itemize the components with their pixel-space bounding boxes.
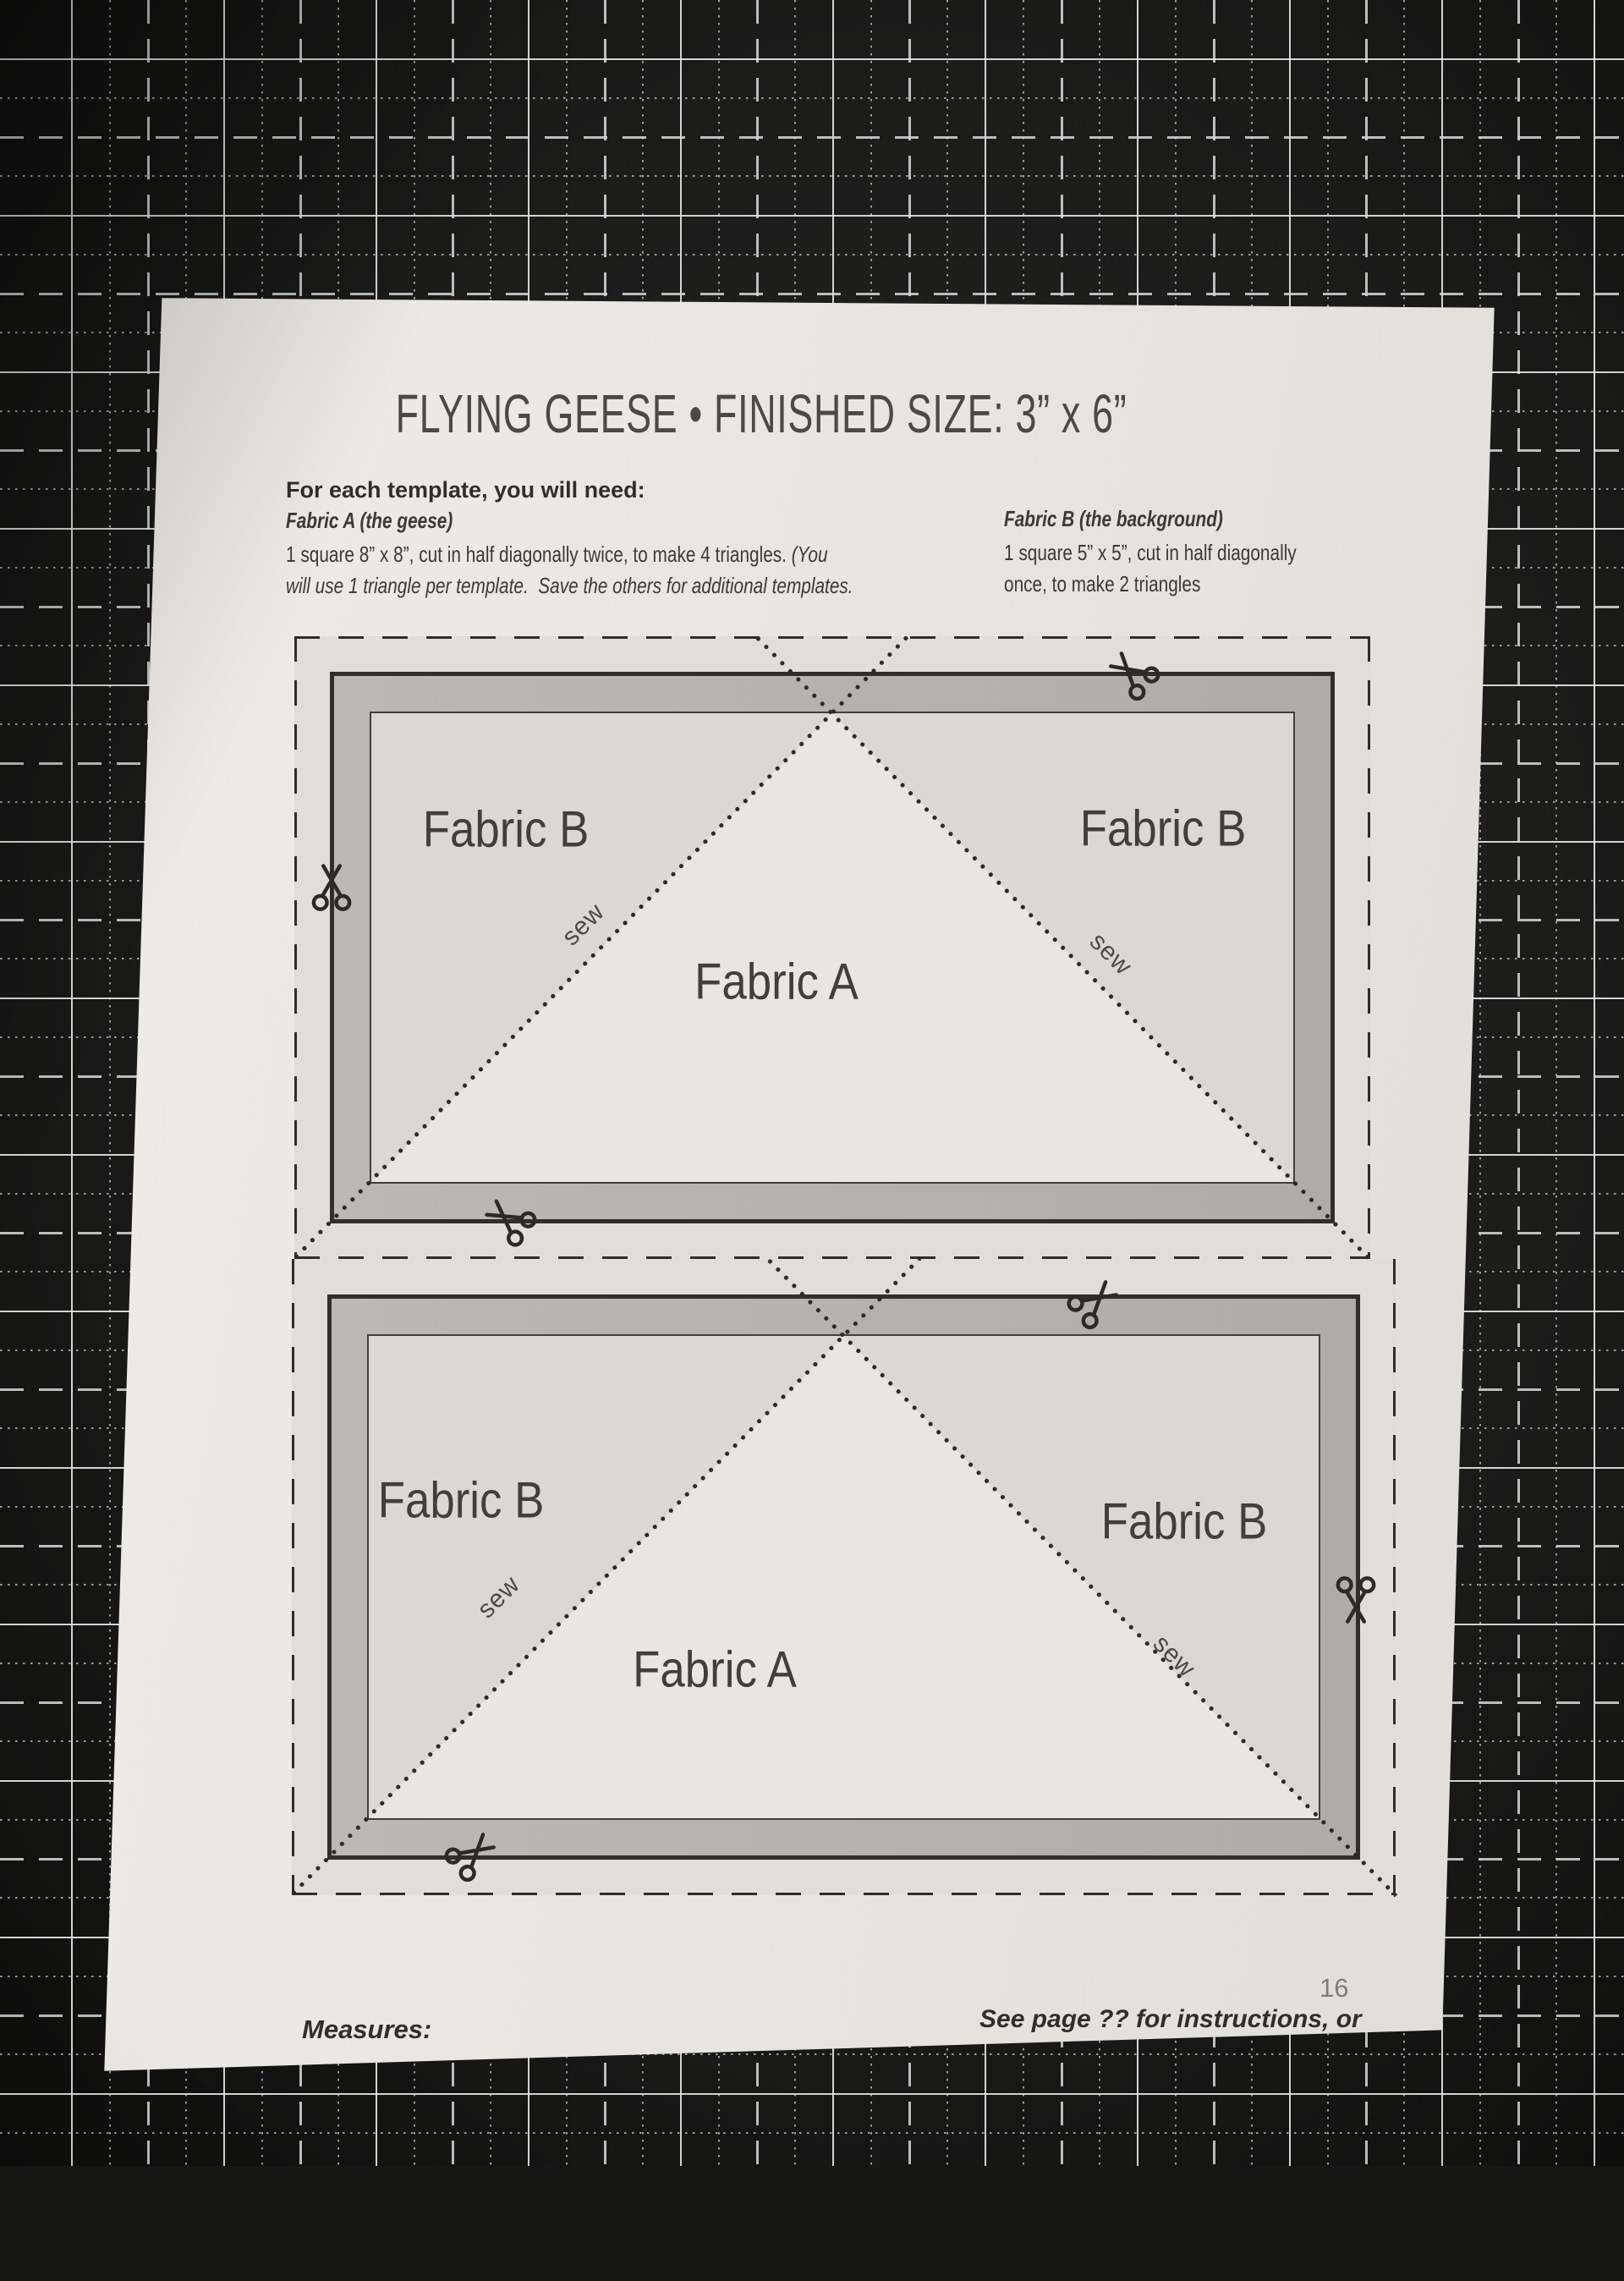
cut-line-left xyxy=(294,636,297,1259)
scissors-icon xyxy=(308,862,355,915)
mat-grid-line xyxy=(71,0,73,2166)
mat-grid-line xyxy=(0,175,1624,177)
cut-line-bottom xyxy=(292,1893,1396,1895)
fabric-b-title: Fabric B (the background) xyxy=(1004,506,1478,532)
fabric-b-line1: 1 square 5” x 5”, cut in half diagonally xyxy=(1004,537,1478,569)
mat-grid-line xyxy=(0,2132,1624,2134)
fabric-b-right-label: Fabric B xyxy=(1080,800,1247,858)
cut-line-right xyxy=(1393,1259,1396,1895)
measures-heading: Measures: xyxy=(302,2007,862,2053)
fabric-b-left-label: Fabric B xyxy=(378,1471,545,1530)
mat-grid-line xyxy=(0,97,1624,99)
fabric-a-label: Fabric A xyxy=(633,1641,797,1699)
mat-grid-line xyxy=(109,0,111,2166)
mat-grid-line xyxy=(1594,0,1595,2166)
mat-grid-line xyxy=(0,254,1624,256)
scissors-icon xyxy=(1332,1573,1380,1625)
mat-grid-line xyxy=(0,58,1624,60)
fabric-a-column: Fabric A (the geese) 1 square 8” x 8”, c… xyxy=(286,508,963,602)
template-inner-area: Fabric B Fabric B Fabric A xyxy=(370,712,1295,1184)
fabric-a-line1-regular: 1 square 8” x 8”, cut in half diagonally… xyxy=(286,541,792,567)
fabric-a-title: Fabric A (the geese) xyxy=(286,508,963,534)
page-title: FLYING GEESE • FINISHED SIZE: 3” x 6” xyxy=(297,382,1226,445)
cut-line-top xyxy=(294,636,1370,639)
mat-grid-line xyxy=(1555,0,1557,2166)
mat-grid-line xyxy=(0,293,1624,295)
fabric-a-line1: 1 square 8” x 8”, cut in half diagonally… xyxy=(286,539,963,570)
cut-line-right xyxy=(1368,636,1370,1259)
materials-heading: For each template, you will need: xyxy=(286,477,645,503)
fabric-b-left-label: Fabric B xyxy=(423,800,590,859)
mat-grid-line xyxy=(0,215,1624,217)
fabric-a-line2: will use 1 triangle per template. Save t… xyxy=(286,570,963,602)
mat-grid-line xyxy=(1517,0,1520,2166)
fabric-a-label: Fabric A xyxy=(694,953,859,1011)
page-number: 16 xyxy=(1319,1973,1348,2003)
cutting-mat: FLYING GEESE • FINISHED SIZE: 3” x 6” Fo… xyxy=(0,0,1624,2166)
fabric-b-line2: once, to make 2 triangles xyxy=(1004,569,1478,600)
flying-geese-template-2: Fabric B Fabric B Fabric A sew sew xyxy=(292,1259,1396,1895)
flying-geese-template-1: Fabric B Fabric B Fabric A sew sew xyxy=(294,636,1370,1259)
fabric-b-column: Fabric B (the background) 1 square 5” x … xyxy=(1004,506,1478,600)
cut-line-left xyxy=(292,1259,294,1895)
fabric-b-right-label: Fabric B xyxy=(1101,1492,1268,1551)
mat-grid-line xyxy=(0,136,1624,139)
fabric-a-line1-italic: (You xyxy=(792,541,828,567)
mat-grid-line xyxy=(0,2093,1624,2095)
paper-sheet: FLYING GEESE • FINISHED SIZE: 3” x 6” Fo… xyxy=(97,294,1501,2075)
